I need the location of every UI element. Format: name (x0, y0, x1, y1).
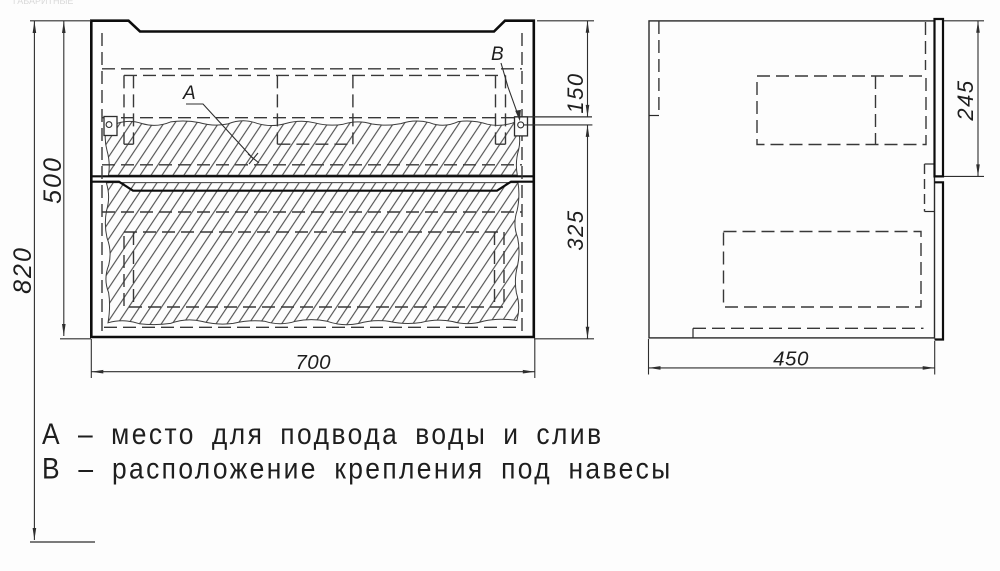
svg-text:245: 245 (953, 79, 978, 121)
svg-text:820: 820 (9, 246, 37, 294)
svg-text:150: 150 (563, 72, 588, 113)
svg-text:500: 500 (39, 156, 67, 204)
svg-text:А – место для подвода воды и: А – место для подвода воды и слив (42, 416, 604, 450)
svg-text:700: 700 (295, 351, 331, 374)
svg-text:ГАБАРИТНЫЕ: ГАБАРИТНЫЕ (13, 0, 73, 6)
svg-text:B: B (491, 44, 504, 65)
svg-text:В – расположение крепления п: В – расположение крепления под навесы (42, 451, 673, 485)
svg-text:325: 325 (563, 209, 588, 250)
svg-text:450: 450 (773, 347, 809, 370)
svg-text:A: A (182, 83, 196, 104)
